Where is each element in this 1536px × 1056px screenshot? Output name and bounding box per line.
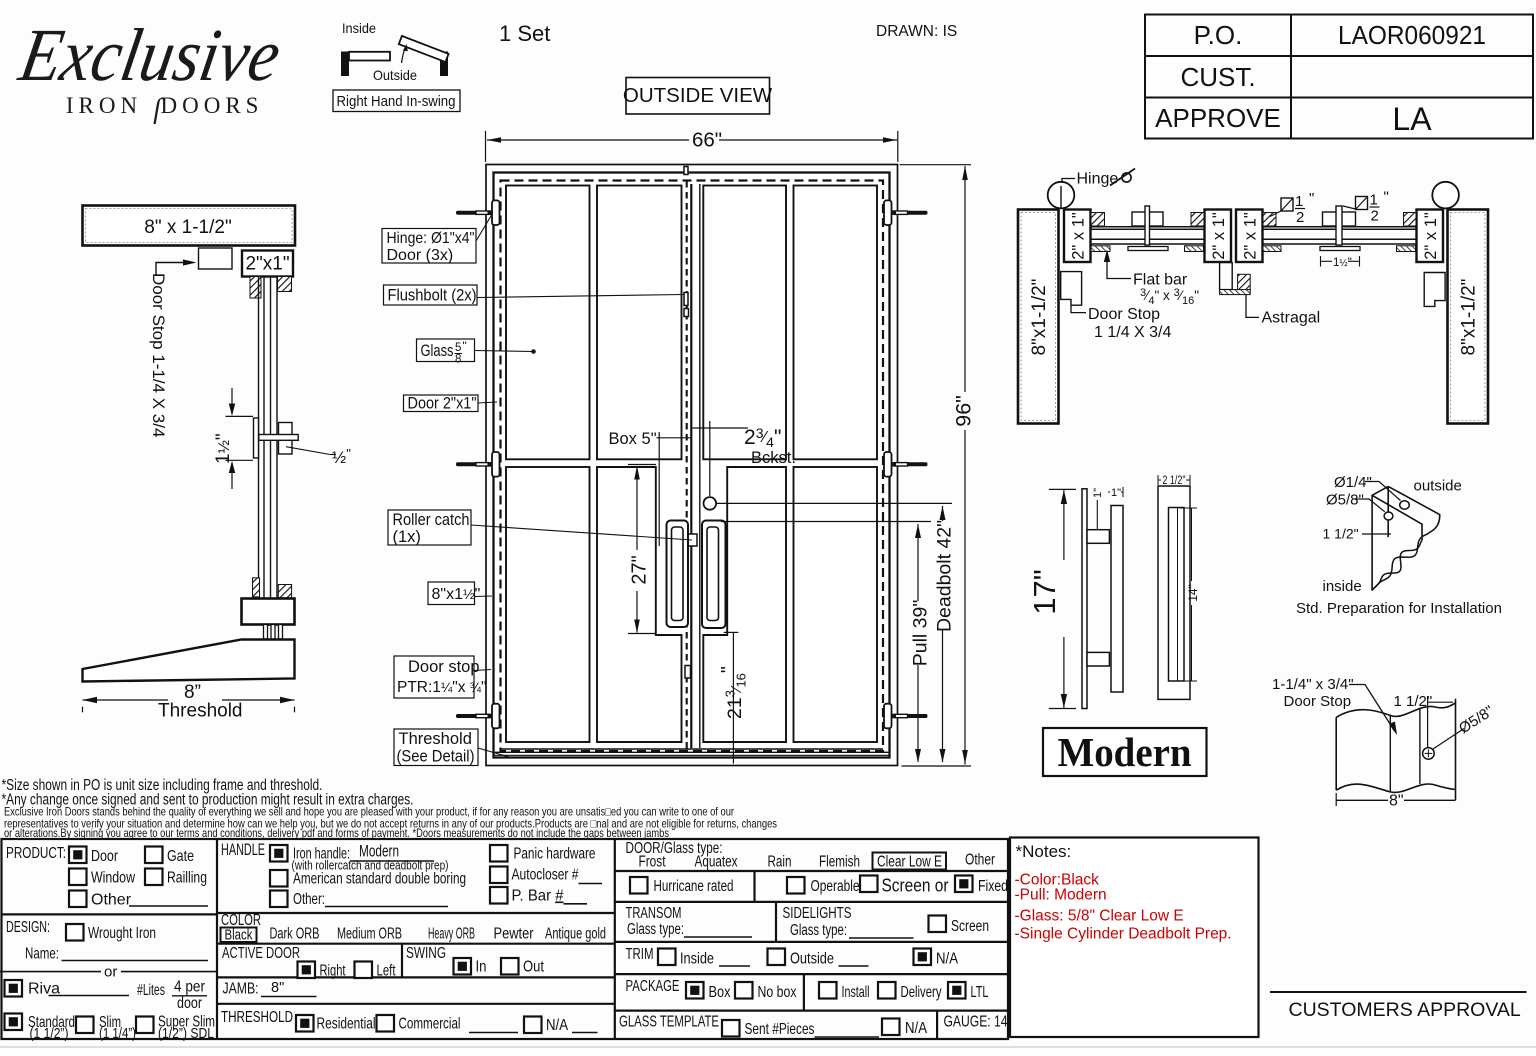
svg-text:DOORS: DOORS xyxy=(161,93,264,118)
svg-text:inside: inside xyxy=(1323,578,1362,595)
svg-text:Hurricane rated: Hurricane rated xyxy=(654,878,734,895)
svg-text:Hinge: Ø1"x4": Hinge: Ø1"x4" xyxy=(387,230,475,247)
svg-text:8"x1-1/2": 8"x1-1/2" xyxy=(1029,279,1050,356)
svg-text:Door 2"x1": Door 2"x1" xyxy=(408,395,477,413)
svg-text:American standard double borin: American standard double boring xyxy=(293,871,466,888)
svg-text:Wrought Iron: Wrought Iron xyxy=(88,925,156,942)
svg-text:1 1/4 X 3/4: 1 1/4 X 3/4 xyxy=(1094,324,1171,341)
svg-text:door: door xyxy=(177,995,203,1012)
svg-text:Door stop: Door stop xyxy=(408,658,480,676)
svg-text:": " xyxy=(463,339,467,353)
svg-text:Astragal: Astragal xyxy=(1262,310,1321,327)
svg-text:Other: Other xyxy=(91,892,132,909)
svg-text:Frost: Frost xyxy=(639,854,667,871)
svg-text:Other:: Other: xyxy=(293,891,325,908)
svg-text:Panic hardware: Panic hardware xyxy=(514,846,596,863)
svg-text:or alterations.By signing you: or alterations.By signing you agree to o… xyxy=(4,827,669,840)
svg-text:1: 1 xyxy=(1370,192,1378,209)
svg-text:LA: LA xyxy=(1392,101,1432,137)
svg-text:LAOR060921: LAOR060921 xyxy=(1338,20,1486,50)
svg-text:In: In xyxy=(476,959,487,976)
svg-text:1½": 1½" xyxy=(213,433,234,464)
svg-text:Flemish: Flemish xyxy=(819,854,860,871)
svg-text:-Single Cylinder Deadbolt Prep: -Single Cylinder Deadbolt Prep. xyxy=(1015,926,1232,943)
svg-text:Rain: Rain xyxy=(768,854,792,871)
svg-text:P. Bar #: P. Bar # xyxy=(512,888,564,905)
svg-text:Door (3x): Door (3x) xyxy=(387,247,454,264)
svg-text:Bckst.: Bckst. xyxy=(751,449,796,467)
svg-text:Ø5/8": Ø5/8" xyxy=(1326,492,1364,509)
svg-text:Door Stop: Door Stop xyxy=(1284,693,1352,710)
svg-text:1: 1 xyxy=(1295,193,1303,210)
svg-text:Aquatex: Aquatex xyxy=(695,854,738,871)
svg-text:outside: outside xyxy=(1414,478,1462,495)
svg-text:Other: Other xyxy=(965,852,995,869)
svg-text:8": 8" xyxy=(271,980,284,996)
svg-text:Inside: Inside xyxy=(342,20,376,36)
svg-text:N/A: N/A xyxy=(546,1017,568,1034)
svg-text:CUSTOMERS APPROVAL: CUSTOMERS APPROVAL xyxy=(1289,999,1521,1021)
svg-text:Clear Low E: Clear Low E xyxy=(877,854,942,871)
svg-text:Screen: Screen xyxy=(951,918,989,935)
svg-text:Railling: Railling xyxy=(167,870,207,887)
svg-text:1 Set: 1 Set xyxy=(499,21,550,46)
svg-text:Inside: Inside xyxy=(680,951,714,968)
svg-text:Glass type:: Glass type: xyxy=(790,922,847,939)
svg-text:Commercial: Commercial xyxy=(399,1016,461,1033)
svg-text:1": 1" xyxy=(1092,488,1104,498)
svg-text:2" x 1": 2" x 1" xyxy=(1242,212,1260,260)
svg-text:66": 66" xyxy=(692,129,722,152)
svg-text:GAUGE: 14: GAUGE: 14 xyxy=(944,1014,1008,1031)
svg-text:Roller catch: Roller catch xyxy=(393,511,470,529)
svg-text:Out: Out xyxy=(523,959,544,976)
svg-text:2: 2 xyxy=(1371,208,1379,225)
svg-text:Black: Black xyxy=(225,927,253,944)
svg-text:ACTIVE DOOR: ACTIVE DOOR xyxy=(222,945,300,962)
svg-text:2" x 1": 2" x 1" xyxy=(1422,212,1440,260)
svg-text:GLASS TEMPLATE: GLASS TEMPLATE xyxy=(619,1014,719,1031)
svg-text:2"x1": 2"x1" xyxy=(245,254,289,275)
svg-text:Threshold: Threshold xyxy=(158,701,243,722)
svg-text:3⁄4" x 3⁄16": 3⁄4" x 3⁄16" xyxy=(1140,287,1199,307)
svg-text:1 1/2": 1 1/2" xyxy=(1394,693,1433,710)
svg-text:Glass: Glass xyxy=(421,342,454,360)
svg-text:(1 1/2”): (1 1/2”) xyxy=(30,1025,69,1042)
svg-text:#Lites: #Lites xyxy=(137,982,165,999)
svg-text:TRIM: TRIM xyxy=(626,946,654,963)
svg-text:": " xyxy=(1309,190,1314,207)
svg-text:Door: Door xyxy=(91,848,119,865)
svg-text:Right: Right xyxy=(320,963,346,980)
svg-text:Flushbolt (2x): Flushbolt (2x) xyxy=(388,287,477,305)
svg-text:IRON: IRON xyxy=(66,93,142,118)
svg-text:SWING: SWING xyxy=(406,945,446,962)
svg-text:APPROVE: APPROVE xyxy=(1155,103,1281,133)
svg-text:½": ½" xyxy=(332,446,351,467)
svg-text:No box: No box xyxy=(758,984,797,1001)
svg-text:Exclusive: Exclusive xyxy=(13,15,286,97)
svg-text:14": 14" xyxy=(1186,584,1200,602)
svg-text:1-1/4" x 3/4": 1-1/4" x 3/4" xyxy=(1272,676,1354,693)
svg-text:Antique gold: Antique gold xyxy=(545,926,606,943)
svg-text:2 1/2": 2 1/2" xyxy=(1163,475,1186,487)
svg-text:*Notes:: *Notes: xyxy=(1016,842,1072,861)
svg-text:THRESHOLD: THRESHOLD xyxy=(221,1009,293,1026)
svg-text:8"x1-1/2": 8"x1-1/2" xyxy=(1459,279,1480,356)
svg-text:Screen or: Screen or xyxy=(882,876,949,896)
svg-text:27": 27" xyxy=(629,555,651,584)
svg-text:Outside: Outside xyxy=(790,951,834,968)
svg-text:SIDELIGHTS: SIDELIGHTS xyxy=(783,905,852,922)
svg-text:Heavy ORB: Heavy ORB xyxy=(428,926,475,943)
svg-text:Sent #Pieces: Sent #Pieces xyxy=(745,1021,815,1038)
svg-text:(1x): (1x) xyxy=(393,528,421,546)
svg-text:2" x 1": 2" x 1" xyxy=(1210,212,1228,260)
svg-text:Glass type:: Glass type: xyxy=(627,921,684,938)
svg-text:(See Detail): (See Detail) xyxy=(397,748,475,766)
svg-text:N/A: N/A xyxy=(936,951,958,968)
svg-text:Right Hand In-swing: Right Hand In-swing xyxy=(337,93,456,110)
svg-text:JAMB:: JAMB: xyxy=(223,981,259,998)
svg-text:Name:: Name: xyxy=(25,946,59,963)
svg-text:N/A: N/A xyxy=(905,1020,927,1037)
svg-text:LTL: LTL xyxy=(971,984,989,1001)
svg-text:Pull 39": Pull 39" xyxy=(910,600,932,667)
svg-text:Ø5/8": Ø5/8" xyxy=(1456,702,1497,737)
svg-text:96": 96" xyxy=(952,395,976,427)
svg-text:Window: Window xyxy=(91,870,135,887)
svg-text:8: 8 xyxy=(455,354,461,366)
svg-text:2: 2 xyxy=(1296,209,1304,226)
svg-text:Gate: Gate xyxy=(167,848,194,865)
svg-text:Box 5": Box 5" xyxy=(609,430,657,448)
svg-text:(1 1/4”): (1 1/4”) xyxy=(99,1025,136,1042)
svg-text:2" x 1": 2" x 1" xyxy=(1070,212,1088,260)
svg-text:Door Stop: Door Stop xyxy=(1088,306,1160,323)
svg-text:P.O.: P.O. xyxy=(1194,20,1243,50)
svg-text:Deadbolt 42": Deadbolt 42" xyxy=(934,520,956,632)
svg-text:PACKAGE: PACKAGE xyxy=(626,978,680,995)
svg-text:DESIGN:: DESIGN: xyxy=(6,919,50,936)
svg-text:1 1/2": 1 1/2" xyxy=(1323,526,1359,542)
svg-text:5: 5 xyxy=(455,342,461,354)
svg-text:1½": 1½" xyxy=(1333,257,1352,269)
svg-text:17": 17" xyxy=(1027,569,1062,615)
svg-text:Modern: Modern xyxy=(1058,729,1192,775)
svg-text:8" x 1-1/2": 8" x 1-1/2" xyxy=(144,217,231,238)
svg-text:4 per: 4 per xyxy=(174,979,206,996)
svg-text:TRANSOM: TRANSOM xyxy=(626,905,682,922)
svg-text:-Pull: Modern: -Pull: Modern xyxy=(1015,887,1107,904)
svg-text:8": 8" xyxy=(1389,793,1404,810)
svg-text:-Glass: 5/8" Clear Low E: -Glass: 5/8" Clear Low E xyxy=(1015,908,1184,925)
svg-text:Flat bar: Flat bar xyxy=(1133,272,1188,289)
svg-text:or: or xyxy=(104,964,117,981)
svg-text:Box: Box xyxy=(709,984,731,1001)
svg-text:PRODUCT:: PRODUCT: xyxy=(6,845,66,862)
svg-text:Door Stop 1-1/4 X 3/4: Door Stop 1-1/4 X 3/4 xyxy=(149,273,168,437)
svg-text:HANDLE: HANDLE xyxy=(221,841,265,859)
svg-text:Delivery: Delivery xyxy=(901,984,942,1001)
svg-text:OUTSIDE VIEW: OUTSIDE VIEW xyxy=(623,84,773,107)
svg-text:CUST.: CUST. xyxy=(1180,62,1255,92)
svg-text:(1/2”) SDL: (1/2”) SDL xyxy=(158,1025,214,1042)
svg-text:Residential: Residential xyxy=(317,1016,376,1033)
svg-text:DRAWN: IS: DRAWN: IS xyxy=(876,23,957,40)
svg-text:Autocloser #: Autocloser # xyxy=(512,867,579,884)
svg-text:8"x1½": 8"x1½" xyxy=(432,586,481,603)
svg-text:Medium ORB: Medium ORB xyxy=(337,926,402,943)
svg-text:Ø1/4": Ø1/4" xyxy=(1334,474,1372,491)
svg-text:Fixed: Fixed xyxy=(978,878,1008,895)
svg-text:Dark ORB: Dark ORB xyxy=(270,926,320,943)
svg-text:": " xyxy=(1384,189,1389,206)
svg-text:1": 1" xyxy=(1111,487,1121,499)
svg-text:PTR:1¼"x ¾": PTR:1¼"x ¾" xyxy=(397,679,487,696)
svg-text:Pewter: Pewter xyxy=(494,926,534,943)
svg-text:Threshold: Threshold xyxy=(399,730,472,748)
svg-text:Outside: Outside xyxy=(373,67,417,83)
svg-text:Left: Left xyxy=(377,963,396,980)
svg-text:Operable: Operable xyxy=(811,878,860,895)
svg-text:Std. Preparation for Installat: Std. Preparation for Installation xyxy=(1296,600,1502,617)
svg-text:Install: Install xyxy=(842,984,870,1001)
